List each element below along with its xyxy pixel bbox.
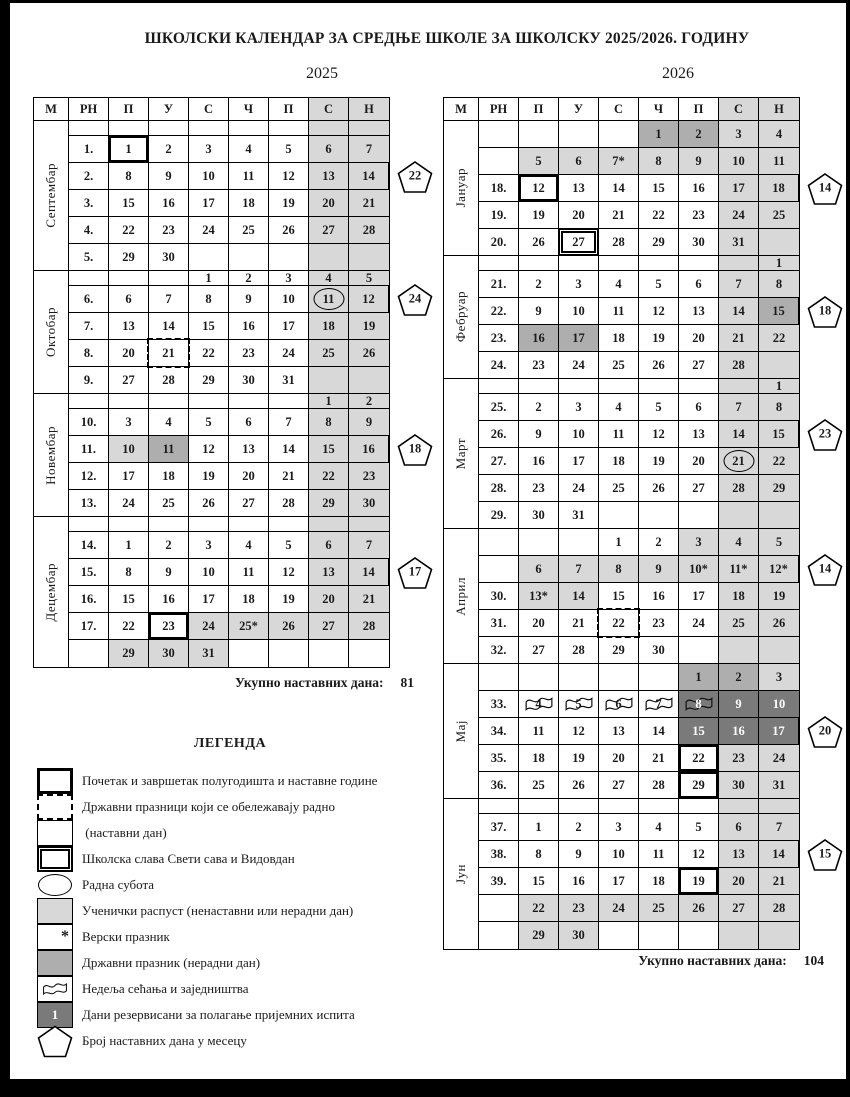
day-number: 10 [122,442,135,457]
day-cell: 28 [349,613,389,640]
day-cell: 9 [229,286,269,313]
day-cell [599,379,639,394]
legend-swatch-asterisk: * [37,924,73,950]
week-number-cell [479,556,519,583]
day-cell [639,379,679,394]
day-cell: 2 [519,271,559,298]
day-number: 18 [732,589,745,604]
day-number: 20 [692,331,705,346]
day-cell: 30 [719,772,759,799]
day-number: 6 [695,400,701,415]
day-cell: 20 [229,463,269,490]
day-cell: 12 [269,559,309,586]
working-saturday-ellipse [38,874,72,896]
day-number: 5 [205,415,211,430]
day-number: 10 [773,697,786,712]
day-cell: 9 [149,559,189,586]
day-cell: 19 [269,190,309,217]
day-number: 15 [772,304,785,319]
calendar-week-row: 678910*11*12*14 [479,556,799,583]
day-number: 22 [612,616,625,631]
day-cell: 3 [559,271,599,298]
day-cell: 10 [189,163,229,190]
day-number: 30 [162,646,175,661]
day-cell: 15 [189,313,229,340]
day-cell: 16 [519,325,559,352]
month-block: Април12345678910*11*12*1430.13*141516171… [444,529,799,664]
week-number-cell [69,394,109,409]
day-number: 17 [692,589,705,604]
header-cell: Н [759,98,799,121]
day-number: 18 [242,592,255,607]
day-number: 26 [363,346,376,361]
day-number: 21 [773,874,786,889]
day-number: 28 [572,643,585,658]
day-cell [309,367,349,394]
header-cell: Н [349,98,389,121]
day-number: 7 [366,538,372,553]
day-cell: 6 [309,532,349,559]
day-cell: 4 [719,529,759,556]
week-number-cell: 17. [69,613,109,640]
day-number: 8 [535,847,541,862]
day-cell: 22 [759,325,799,352]
day-number: 26 [572,778,585,793]
day-number: 9 [165,169,171,184]
day-cell: 2 [349,394,389,409]
day-cell: 30 [229,367,269,394]
day-number: 4 [655,820,661,835]
day-cell: 25 [599,475,639,502]
day-number: 16 [732,724,745,739]
day-cell: 27 [599,772,639,799]
day-cell: 29 [109,244,149,271]
day-number: 3 [735,127,741,142]
calendar-week-row: 10.3456789 [69,409,389,436]
week-number-cell [479,895,519,922]
day-number: 20 [612,751,625,766]
month-name: Октобар [43,307,59,357]
calendar-week-row: 293031 [69,640,389,667]
day-cell: 8 [109,559,149,586]
day-number: 6 [125,292,131,307]
day-number: 28 [162,373,175,388]
day-number: 11 [613,427,625,442]
day-cell: 2 [679,121,719,148]
day-number: 10 [202,169,215,184]
day-cell: 1 [109,532,149,559]
day-cell: 27 [109,367,149,394]
day-number: 8 [325,415,331,430]
day-cell: 8 [519,841,559,868]
day-cell: 21 [719,325,759,352]
day-cell: 5 [639,394,679,421]
calendar-week-row: 32.27282930 [479,637,799,664]
day-cell: 7 [719,271,759,298]
header-cell: М [444,98,479,121]
week-number-cell: 37. [479,814,519,841]
teaching-days-pentagon: 23 [807,418,843,451]
day-number: 26 [652,358,665,373]
week-number-cell [69,271,109,286]
day-number: 4 [165,415,171,430]
day-number: 10 [572,427,585,442]
week-number-cell: 36. [479,772,519,799]
legend-item: Почетак и завршетак полугодишта и настав… [37,768,377,794]
day-cell: 18 [599,325,639,352]
month-label-cell: Март [444,379,479,529]
day-cell: 26 [519,229,559,256]
day-cell [759,922,799,949]
day-cell: 19 [679,868,719,895]
week-number-cell: 38. [479,841,519,868]
day-cell: 25 [719,610,759,637]
day-cell: 24 [559,352,599,379]
day-cell [559,256,599,271]
day-cell: 7 [349,532,389,559]
day-cell: 7 [269,409,309,436]
teaching-days-pentagon: 18 [807,295,843,328]
day-cell: 16 [349,436,389,463]
day-cell: 10 [559,298,599,325]
day-number: 11 [163,442,175,457]
day-number: 28 [732,358,745,373]
teaching-days-count: 24 [397,291,433,306]
day-cell: 29 [189,367,229,394]
day-number: 11 [243,565,255,580]
week-number-cell [69,121,109,136]
day-number: 19 [652,331,665,346]
calendar-week-row: 6.678910111224 [69,286,389,313]
day-number: 7 [165,292,171,307]
calendar-week-row: 16.15161718192021 [69,586,389,613]
day-cell: 27 [559,229,599,256]
day-number: 25 [652,901,665,916]
day-cell: 5 [269,532,309,559]
day-number: 24 [732,208,745,223]
calendar-week-row: 31.20212223242526 [479,610,799,637]
day-number: 11 [533,724,545,739]
day-number: 13 [572,181,585,196]
day-cell: 23 [679,202,719,229]
day-number: 16 [362,442,375,457]
day-cell: 8 [309,409,349,436]
day-number: 18 [652,874,665,889]
day-number: 24 [773,751,786,766]
day-cell: 19 [639,325,679,352]
day-number: 12 [202,442,215,457]
day-cell: 10 [759,691,799,718]
week-number-cell: 11. [69,436,109,463]
day-cell: 21 [349,586,389,613]
day-cell: 22 [679,745,719,772]
day-cell: 9 [719,691,759,718]
day-number: 4 [325,271,331,286]
day-cell [599,922,639,949]
day-cell: 15 [309,436,349,463]
teaching-days-pentagon [37,1025,73,1058]
day-cell: 30 [639,637,679,664]
day-cell: 24 [679,610,719,637]
week-number-cell: 16. [69,586,109,613]
week-number-cell: 12. [69,463,109,490]
day-cell: 18 [309,313,349,340]
day-cell [269,394,309,409]
day-number: 3 [615,820,621,835]
day-cell: 1 [639,121,679,148]
day-cell [309,517,349,532]
header-cell: Ч [639,98,679,121]
day-cell: 10 [109,436,149,463]
day-number: 20 [322,592,335,607]
week-number-cell [479,379,519,394]
day-number: 20 [732,874,745,889]
day-cell: 3 [269,271,309,286]
day-cell [229,244,269,271]
day-number: 11 [773,154,785,169]
month-label-cell: Децембар [34,517,69,667]
day-cell: 11 [309,286,349,313]
day-number: 2 [535,400,541,415]
day-number: 8 [125,565,131,580]
calendar-week-row: 11.1011121314151618 [69,436,389,463]
calendar-week-row [479,799,799,814]
day-cell: 22 [639,202,679,229]
calendar-week-row: 24.232425262728 [479,352,799,379]
day-cell: 25* [229,613,269,640]
day-number: 6 [575,154,581,169]
day-cell: 2 [149,136,189,163]
day-number: 4 [245,142,251,157]
day-cell: 28 [719,475,759,502]
day-cell: 3 [599,814,639,841]
day-number: 28 [773,901,786,916]
month-label-cell: Фебруар [444,256,479,379]
calendar-week-row: 20.262728293031 [479,229,799,256]
remembrance-flag-icon [41,981,69,997]
day-number: 26 [532,235,545,250]
week-number-cell: 28. [479,475,519,502]
day-cell [759,352,799,379]
day-number: 15 [652,181,665,196]
calendar-week-row: 4.22232425262728 [69,217,389,244]
day-number: 28 [282,496,295,511]
day-number: 13 [732,847,745,862]
day-number: 22 [532,901,545,916]
legend-item: *Верски празник [37,924,377,950]
day-cell [349,244,389,271]
day-cell: 23 [349,463,389,490]
header-cell: С [309,98,349,121]
day-number: 5 [655,277,661,292]
day-cell: 19 [189,463,229,490]
day-cell: 16 [639,583,679,610]
day-cell: 17 [759,718,799,745]
day-cell: 14 [719,298,759,325]
total-teaching-days-2026: Укупно наставних дана: 104 [443,953,824,969]
day-cell: 11 [229,559,269,586]
day-cell: 4 [229,136,269,163]
month-block: Децембар14.123456715.8910111213141716.15… [34,517,389,667]
day-cell: 6 [519,556,559,583]
week-number-cell [479,922,519,949]
day-cell: 7 [719,394,759,421]
day-cell: 2 [149,532,189,559]
calendar-week-row: 25.2345678 [479,394,799,421]
day-cell: 15 [759,298,799,325]
day-number: 9 [735,697,741,712]
legend-item: Државни празници који се обележавају рад… [37,794,377,820]
calendar-week-row: 33.45678910 [479,691,799,718]
day-cell: 8 [759,271,799,298]
day-cell [149,121,189,136]
day-number: 18 [612,331,625,346]
day-cell [719,799,759,814]
day-cell: 1 [679,664,719,691]
day-number: 14 [282,442,295,457]
calendar-week-row: 27.16171819202122 [479,448,799,475]
day-number: 20 [532,616,545,631]
header-cell: П [519,98,559,121]
day-cell: 10* [679,556,719,583]
header-cell: С [189,98,229,121]
day-cell: 20 [679,325,719,352]
day-cell: 5 [269,136,309,163]
day-cell: 30 [519,502,559,529]
day-number: 25 [773,208,786,223]
day-number: 17 [612,874,625,889]
day-cell: 16 [149,190,189,217]
day-number: 21 [612,208,625,223]
day-number: 1 [125,538,131,553]
day-number: 27 [532,643,545,658]
day-cell: 28 [349,217,389,244]
day-cell [229,394,269,409]
day-cell [229,517,269,532]
day-number: 16 [162,592,175,607]
day-cell: 27 [519,637,559,664]
teaching-days-pentagon: 20 [807,715,843,748]
legend-item: Државни празник (нерадни дан) [37,950,377,976]
week-number-cell: 29. [479,502,519,529]
calendar-week-row: 15.89101112131417 [69,559,389,586]
day-cell: 10 [719,148,759,175]
day-number: 10* [689,562,708,577]
day-cell: 9 [639,556,679,583]
day-number: 8 [695,697,701,712]
day-number: 29 [322,496,335,511]
day-cell: 2 [719,664,759,691]
day-number: 12 [692,847,705,862]
day-number: 19 [773,589,786,604]
day-cell: 27 [719,895,759,922]
day-cell: 13 [309,163,349,190]
day-cell: 26 [759,610,799,637]
teaching-days-pentagon: 22 [397,160,433,193]
calendar-week-row: 12 [69,394,389,409]
day-number: 12 [652,427,665,442]
day-number: 6 [735,820,741,835]
calendar-week-row: 30.13*141516171819 [479,583,799,610]
calendar-week-row: 123 [479,664,799,691]
day-number: 19 [282,196,295,211]
day-number: 25 [612,358,625,373]
day-cell [189,517,229,532]
day-cell: 17 [559,448,599,475]
year-label-2026: 2026 [498,65,850,83]
day-number: 25 [162,496,175,511]
day-cell: 17 [189,586,229,613]
day-cell: 12 [559,718,599,745]
total-label: Укупно наставних дана: [638,953,786,969]
day-number: 13 [242,442,255,457]
week-number-cell [479,664,519,691]
month-block: Октобар123456.6789101112247.131415161718… [34,271,389,394]
day-cell: 28 [639,772,679,799]
day-cell: 28 [149,367,189,394]
day-number: 2 [575,820,581,835]
day-number: 14 [362,565,375,580]
week-number-cell: 1. [69,136,109,163]
day-number: 4 [615,400,621,415]
legend-item: Радна субота [37,872,377,898]
day-cell: 1 [189,271,229,286]
day-cell: 6 [109,286,149,313]
day-cell: 30 [149,244,189,271]
month-label-cell: Април [444,529,479,664]
day-cell: 7 [149,286,189,313]
day-number: 31 [282,373,295,388]
day-number: 2 [366,394,372,409]
day-number: 11 [613,304,625,319]
day-number: 3 [695,535,701,550]
day-number: 9 [655,562,661,577]
month-block: Фебруар121.234567822.91011121314151823.1… [444,256,799,379]
day-cell: 18 [759,175,799,202]
day-cell [149,517,189,532]
day-cell [559,379,599,394]
week-number-cell: 3. [69,190,109,217]
calendar-week-row: 37.1234567 [479,814,799,841]
day-number: 20 [692,454,705,469]
day-cell: 4 [309,271,349,286]
header-cell: У [149,98,189,121]
day-number: 23 [532,481,545,496]
day-cell [639,502,679,529]
day-cell: 27 [679,352,719,379]
calendar-week-row [69,121,389,136]
day-cell: 19 [519,202,559,229]
week-number-cell: 9. [69,367,109,394]
legend-swatch-thick [37,768,73,794]
day-cell: 14 [149,313,189,340]
day-number: 27 [242,496,255,511]
day-cell [109,121,149,136]
day-cell: 4 [519,691,559,718]
day-number: 14 [732,427,745,442]
day-number: 9 [535,427,541,442]
day-number: 21 [732,454,745,469]
month-block: Јануар1234567*89101118.12131415161718141… [444,121,799,256]
legend-item: 1Дани резервисани за полагање пријемних … [37,1002,377,1028]
day-cell: 22 [109,613,149,640]
week-number-cell: 19. [479,202,519,229]
day-cell: 30 [679,229,719,256]
day-number: 7* [612,154,625,169]
day-number: 12* [769,562,788,577]
week-number-cell: 31. [479,610,519,637]
day-cell: 1 [309,394,349,409]
